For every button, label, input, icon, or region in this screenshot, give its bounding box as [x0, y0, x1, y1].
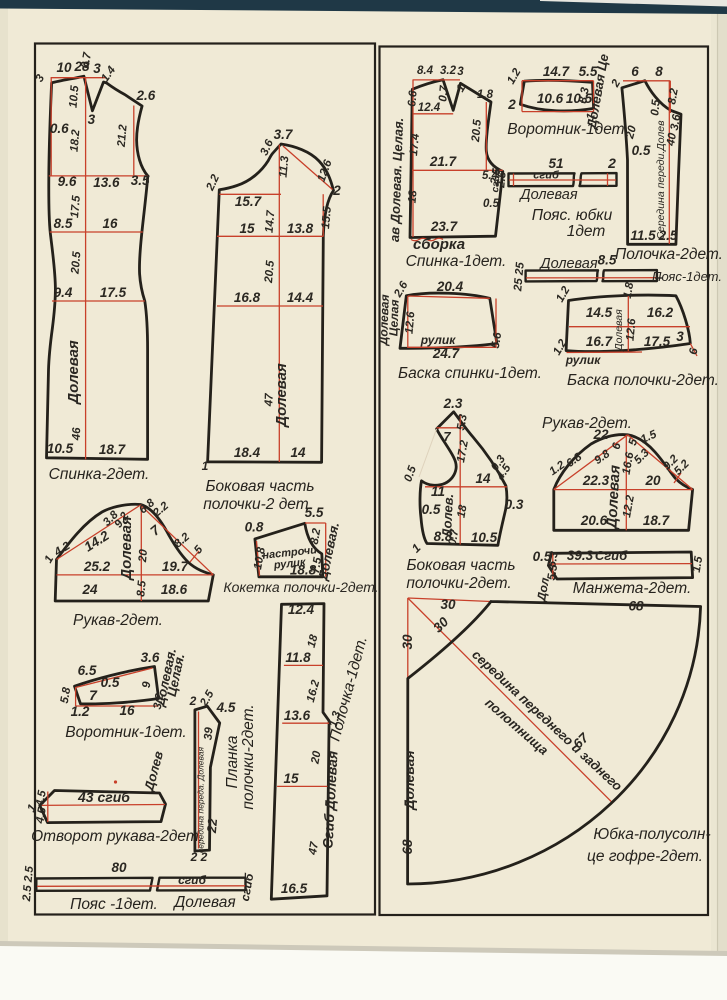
svg-text:24: 24 — [81, 582, 98, 597]
svg-text:11.8: 11.8 — [285, 650, 311, 665]
svg-text:Пояс. юбки: Пояс. юбки — [532, 207, 613, 224]
svg-text:3: 3 — [88, 112, 96, 127]
svg-text:3.7: 3.7 — [274, 127, 294, 142]
svg-text:0.7: 0.7 — [437, 85, 450, 103]
svg-text:0.5: 0.5 — [101, 675, 120, 690]
svg-text:68: 68 — [400, 839, 415, 855]
svg-text:18.2: 18.2 — [69, 128, 83, 152]
svg-text:20.4: 20.4 — [436, 279, 464, 294]
svg-text:6.5: 6.5 — [78, 663, 97, 678]
svg-text:Рукав-2дет.: Рукав-2дет. — [73, 612, 163, 629]
svg-text:22: 22 — [204, 817, 220, 834]
svg-text:Долевая: Долевая — [538, 256, 598, 272]
svg-text:сгиб: сгиб — [533, 170, 560, 182]
svg-text:Долевая: Долевая — [401, 750, 417, 810]
svg-text:12.4: 12.4 — [288, 602, 315, 617]
svg-text:Баска спинки-1дет.: Баска спинки-1дет. — [398, 365, 542, 382]
svg-text:39.3: 39.3 — [567, 548, 594, 563]
svg-text:24.7: 24.7 — [432, 346, 461, 361]
svg-text:10: 10 — [56, 60, 72, 75]
svg-text:2 2: 2 2 — [190, 850, 208, 864]
svg-text:2: 2 — [607, 155, 616, 171]
svg-text:20: 20 — [137, 548, 150, 563]
svg-text:15.5: 15.5 — [320, 205, 334, 229]
svg-text:3: 3 — [457, 66, 464, 78]
svg-text:8.5: 8.5 — [598, 253, 617, 268]
svg-text:14.5: 14.5 — [586, 305, 613, 320]
svg-text:20.5: 20.5 — [69, 250, 83, 275]
svg-text:Боковая часть: Боковая часть — [406, 557, 515, 574]
svg-text:0.6: 0.6 — [50, 121, 69, 136]
svg-text:Долевая: Долевая — [518, 187, 578, 203]
svg-text:8: 8 — [655, 64, 663, 79]
svg-text:Баска полочки-2дет.: Баска полочки-2дет. — [567, 372, 719, 389]
svg-text:Рукав-2дет.: Рукав-2дет. — [542, 415, 632, 432]
svg-text:21.7: 21.7 — [429, 154, 458, 169]
svg-text:Кокетка полочки-2дет.: Кокетка полочки-2дет. — [223, 579, 378, 595]
svg-text:22: 22 — [592, 427, 609, 442]
svg-text:12.4: 12.4 — [418, 102, 441, 114]
svg-text:Отворот рукава-2дет.: Отворот рукава-2дет. — [31, 828, 203, 845]
svg-text:16: 16 — [102, 216, 118, 231]
svg-text:сборка: сборка — [413, 236, 465, 253]
svg-text:Пояс -1дет.: Пояс -1дет. — [70, 896, 158, 913]
svg-text:сгиб: сгиб — [489, 168, 503, 193]
svg-text:полочки-2дет.: полочки-2дет. — [240, 704, 257, 809]
svg-text:рулик: рулик — [420, 333, 456, 347]
svg-text:30: 30 — [440, 597, 456, 612]
svg-text:Спинка-2дет.: Спинка-2дет. — [49, 466, 150, 483]
svg-text:15: 15 — [239, 221, 255, 236]
svg-text:21.2: 21.2 — [116, 123, 130, 148]
svg-text:10.5: 10.5 — [68, 84, 82, 108]
svg-text:це гофре-2дет.: це гофре-2дет. — [587, 848, 703, 865]
svg-text:3.2: 3.2 — [440, 65, 457, 77]
svg-text:68: 68 — [628, 599, 644, 614]
svg-text:46: 46 — [71, 427, 83, 442]
svg-text:18.7: 18.7 — [643, 513, 671, 528]
svg-text:17.4: 17.4 — [408, 132, 422, 156]
svg-text:Середина переди.Долев: Середина переди.Долев — [655, 120, 667, 240]
svg-text:14.7: 14.7 — [264, 209, 278, 233]
svg-text:13.6: 13.6 — [93, 175, 120, 190]
svg-text:3.6: 3.6 — [141, 650, 160, 665]
svg-text:0.5: 0.5 — [422, 502, 441, 517]
svg-text:14.4: 14.4 — [287, 290, 314, 305]
svg-text:30: 30 — [400, 634, 415, 650]
svg-text:10.6: 10.6 — [537, 91, 564, 106]
svg-text:полочки-2 дет.: полочки-2 дет. — [203, 496, 313, 513]
svg-text:23.7: 23.7 — [430, 219, 459, 234]
svg-text:11.5: 11.5 — [630, 228, 656, 243]
svg-text:12.6: 12.6 — [625, 317, 639, 341]
svg-text:18: 18 — [406, 189, 419, 203]
svg-text:0.5: 0.5 — [649, 99, 662, 117]
svg-text:Пояс-1дет.: Пояс-1дет. — [652, 269, 722, 284]
svg-text:9.4: 9.4 — [54, 285, 73, 300]
svg-text:3: 3 — [676, 329, 684, 344]
svg-text:18.6: 18.6 — [161, 582, 188, 597]
svg-text:Сгиб: Сгиб — [595, 548, 628, 563]
svg-text:3: 3 — [93, 61, 101, 76]
svg-text:17.5: 17.5 — [100, 285, 127, 300]
svg-text:13.8: 13.8 — [287, 221, 314, 236]
svg-text:3.5: 3.5 — [131, 173, 150, 188]
svg-text:10.5: 10.5 — [471, 530, 498, 545]
svg-text:8.4: 8.4 — [417, 65, 434, 77]
svg-text:Манжета-2дет.: Манжета-2дет. — [573, 580, 692, 597]
svg-text:20.6: 20.6 — [580, 513, 608, 528]
svg-text:0.8: 0.8 — [245, 520, 264, 535]
svg-text:1.2: 1.2 — [71, 704, 90, 719]
svg-text:16.7: 16.7 — [586, 334, 614, 349]
svg-text:1дет: 1дет — [567, 223, 606, 240]
svg-text:0.5: 0.5 — [632, 143, 651, 158]
svg-text:4.5: 4.5 — [216, 700, 236, 715]
svg-text:10.5: 10.5 — [47, 441, 74, 456]
svg-text:15.7: 15.7 — [235, 194, 263, 209]
svg-text:2: 2 — [332, 183, 341, 198]
svg-text:Долевая: Долевая — [118, 516, 135, 582]
svg-text:1: 1 — [202, 459, 209, 473]
svg-text:Планка: Планка — [224, 735, 241, 788]
svg-text:1.8: 1.8 — [477, 89, 494, 101]
svg-text:Воротник-1дет.: Воротник-1дет. — [507, 121, 628, 138]
svg-text:16: 16 — [119, 703, 135, 718]
svg-text:20: 20 — [309, 750, 323, 766]
svg-text:Боковая часть: Боковая часть — [205, 478, 314, 495]
svg-text:полочки-2дет.: полочки-2дет. — [406, 575, 511, 592]
svg-text:39: 39 — [202, 726, 215, 740]
svg-text:17.5: 17.5 — [644, 334, 671, 349]
svg-text:Долевая: Долевая — [273, 363, 290, 429]
svg-text:рулик: рулик — [565, 353, 601, 367]
svg-text:43 сгиб: 43 сгиб — [77, 789, 130, 805]
svg-text:6: 6 — [631, 64, 639, 79]
svg-text:11.3: 11.3 — [278, 155, 292, 178]
svg-text:2.5: 2.5 — [658, 228, 678, 243]
svg-text:7: 7 — [89, 687, 98, 703]
svg-text:8.5: 8.5 — [54, 216, 73, 231]
svg-text:сгиб: сгиб — [178, 873, 206, 887]
svg-text:2: 2 — [507, 97, 516, 112]
svg-text:20.5: 20.5 — [263, 259, 277, 284]
svg-text:Юбка-полусолн-: Юбка-полусолн- — [593, 826, 710, 843]
svg-text:13.6: 13.6 — [284, 708, 311, 723]
svg-text:25.2: 25.2 — [83, 559, 111, 574]
svg-text:Воротник-1дет.: Воротник-1дет. — [65, 724, 186, 741]
svg-text:Спинка-1дет.: Спинка-1дет. — [406, 253, 507, 270]
svg-text:14: 14 — [290, 445, 306, 460]
svg-text:16.8: 16.8 — [234, 290, 261, 305]
svg-text:9.6: 9.6 — [58, 174, 77, 189]
svg-text:18.7: 18.7 — [99, 442, 127, 457]
svg-text:5.5: 5.5 — [305, 505, 324, 520]
svg-text:Долевая: Долевая — [172, 894, 235, 911]
svg-text:Долевая: Долевая — [65, 340, 82, 406]
svg-text:18.4: 18.4 — [234, 445, 261, 460]
svg-text:16.2: 16.2 — [647, 305, 674, 320]
svg-text:0.5: 0.5 — [483, 198, 500, 210]
svg-text:18.8: 18.8 — [290, 563, 317, 578]
svg-text:17.5: 17.5 — [69, 194, 83, 218]
svg-text:20: 20 — [644, 473, 661, 488]
svg-text:15: 15 — [283, 771, 299, 786]
svg-text:16.5: 16.5 — [281, 881, 308, 896]
svg-text:19.7: 19.7 — [162, 559, 190, 574]
svg-text:2.6: 2.6 — [136, 88, 156, 103]
svg-text:14: 14 — [475, 471, 491, 486]
svg-text:14.7: 14.7 — [543, 64, 571, 79]
svg-text:7: 7 — [443, 429, 451, 444]
svg-text:12.6: 12.6 — [404, 310, 418, 334]
svg-text:2.3: 2.3 — [443, 396, 463, 411]
svg-text:середина переда. Долевая: середина переда. Долевая — [196, 747, 206, 853]
svg-text:0.3: 0.3 — [505, 497, 524, 512]
svg-text:8.5: 8.5 — [135, 580, 148, 598]
svg-text:Целая: Целая — [386, 299, 401, 336]
svg-text:Полочка-2дет.: Полочка-2дет. — [615, 246, 723, 263]
svg-text:20.5: 20.5 — [470, 118, 484, 143]
svg-text:80: 80 — [111, 860, 127, 875]
svg-text:2: 2 — [189, 694, 197, 708]
svg-text:Долевая: Долевая — [613, 309, 625, 352]
